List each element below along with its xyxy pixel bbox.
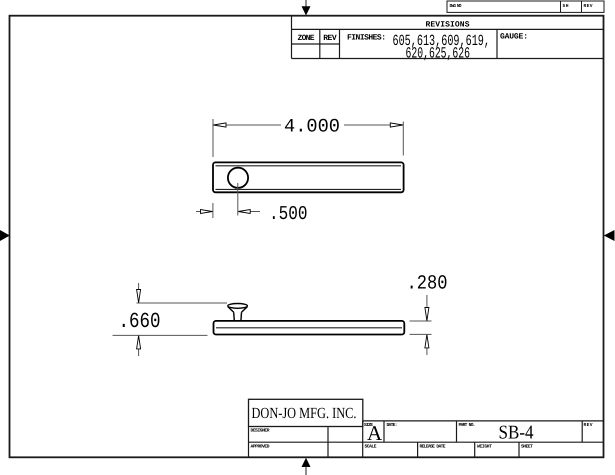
svg-text:PART NO.: PART NO. [459, 422, 476, 428]
svg-text:DATE:: DATE: [387, 422, 398, 428]
svg-text:.660: .660 [119, 310, 161, 334]
svg-text:SHEET: SHEET [521, 443, 533, 449]
svg-text:DWG NO: DWG NO [450, 3, 462, 9]
svg-text:4.000: 4.000 [284, 116, 340, 138]
svg-text:REVISIONS: REVISIONS [426, 20, 470, 29]
svg-text:FINISHES:: FINISHES: [347, 33, 386, 42]
svg-text:620,625,626: 620,625,626 [406, 45, 471, 63]
svg-text:WEIGHT: WEIGHT [477, 443, 492, 449]
svg-text:.500: .500 [269, 203, 308, 225]
svg-text:APPROVED: APPROVED [251, 444, 270, 450]
svg-text:RELEASE DATE: RELEASE DATE [420, 443, 446, 449]
svg-text:REV: REV [323, 34, 337, 43]
svg-text:ZONE: ZONE [298, 34, 315, 43]
svg-text:A: A [367, 421, 383, 445]
svg-text:REV: REV [584, 3, 593, 9]
svg-text:GAUGE:: GAUGE: [500, 33, 528, 42]
svg-text:SCALE: SCALE [365, 443, 377, 449]
svg-text:SB-4: SB-4 [499, 422, 534, 443]
svg-text:DESIGNER: DESIGNER [251, 428, 270, 434]
svg-text:SH: SH [563, 3, 569, 9]
svg-text:REV: REV [584, 422, 593, 428]
svg-text:DON-JO MFG. INC.: DON-JO MFG. INC. [252, 405, 357, 422]
svg-text:.280: .280 [407, 273, 448, 296]
